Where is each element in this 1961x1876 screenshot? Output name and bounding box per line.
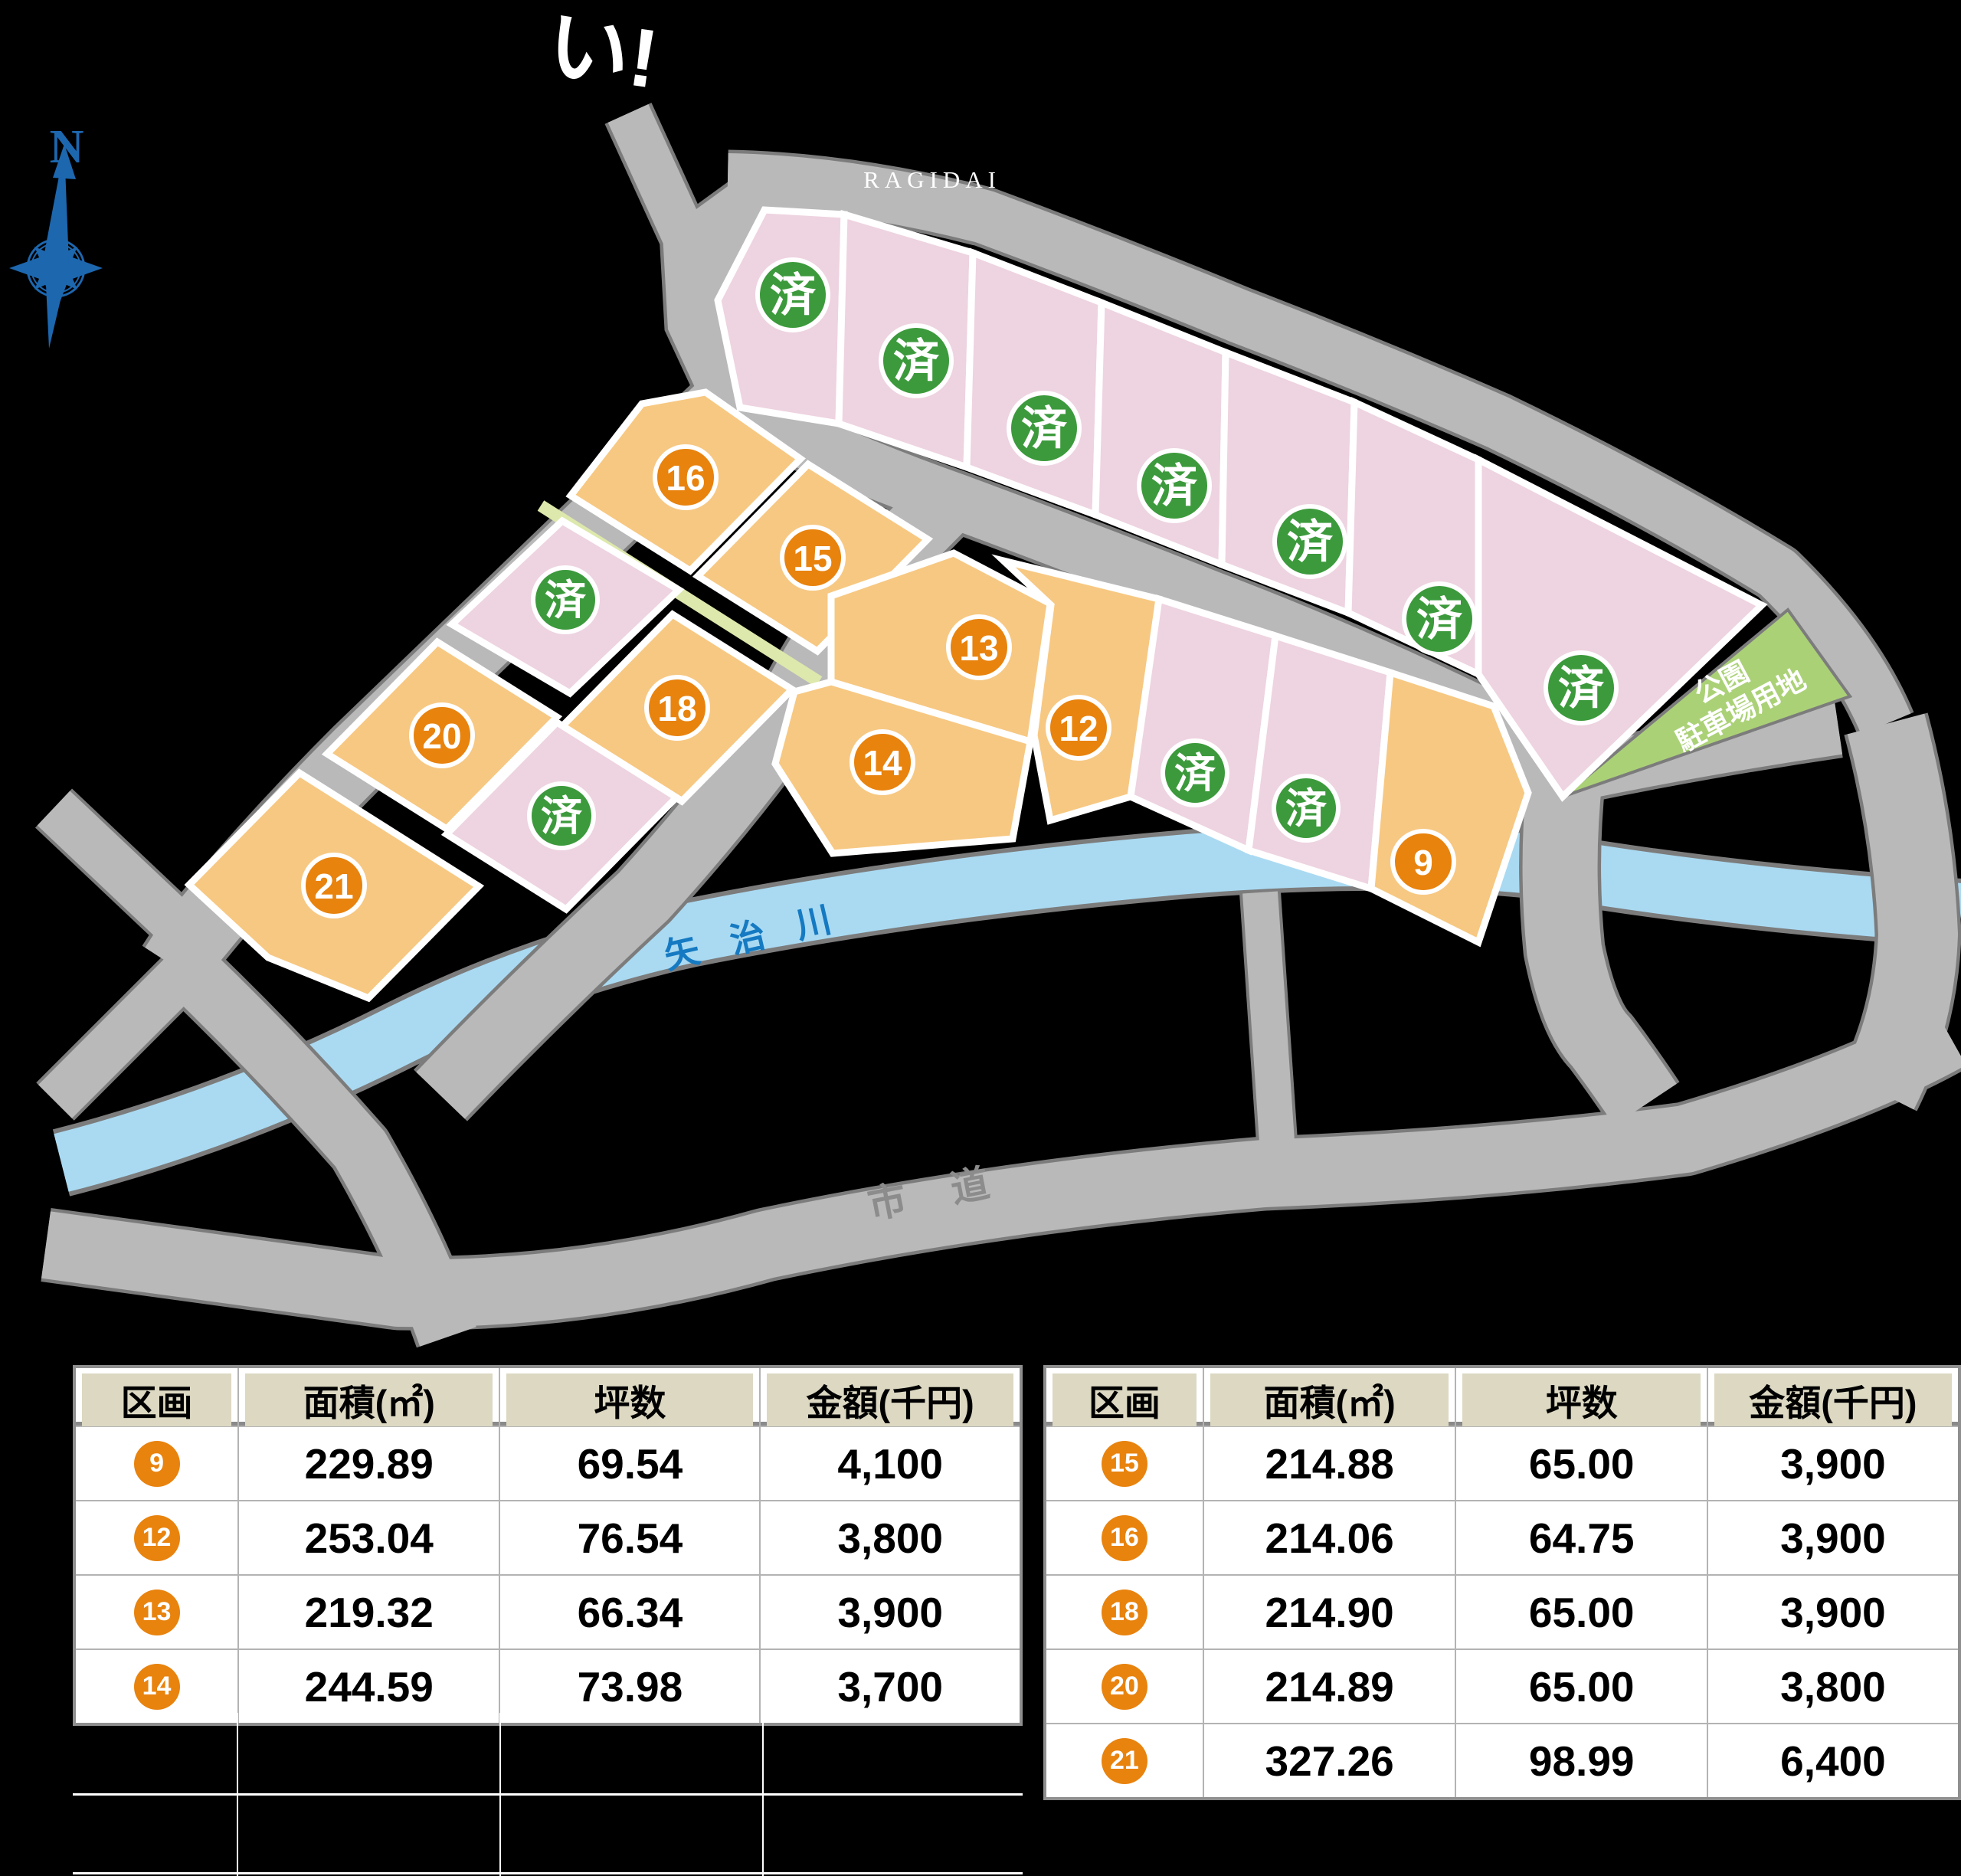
price-cell: 3,700 [761,1650,1020,1723]
lot-number-badge: 21 [1102,1738,1147,1784]
area-cell: 229.89 [239,1427,500,1500]
svg-text:済: 済 [1021,403,1068,454]
lot-number-cell: 21 [1046,1724,1204,1797]
lot-number-cell: 16 [1046,1501,1204,1574]
svg-text:済: 済 [545,578,587,624]
lot-number-cell: 20 [1046,1650,1204,1723]
area-name-label: RAGIDAI [863,166,1001,193]
lot-number-badge: 9 [134,1441,180,1487]
table-row: 13219.3266.343,900 [76,1574,1020,1648]
table-row: 9229.8969.544,100 [76,1426,1020,1500]
svg-text:済: 済 [1558,663,1605,714]
table-row: 18214.9065.003,900 [1046,1574,1958,1648]
title-fragment: い! [542,0,663,106]
lot-sold-5 [1222,352,1354,613]
lot-number-cell: 18 [1046,1576,1204,1648]
price-cell: 3,900 [1708,1501,1958,1574]
column-header: 坪数 [500,1368,761,1432]
svg-text:18: 18 [657,689,696,728]
svg-text:15: 15 [793,539,832,578]
column-header-label: 区画 [1053,1373,1197,1426]
area-cell: 244.59 [239,1650,500,1723]
svg-text:済: 済 [1287,516,1334,568]
area-cell: 219.32 [239,1576,500,1648]
tsubo-cell: 66.34 [500,1576,761,1648]
table-row: 20214.8965.003,800 [1046,1648,1958,1723]
column-header-label: 坪数 [1462,1373,1700,1426]
price-cell: 3,900 [1708,1427,1958,1500]
lot-sold-4 [1095,303,1226,565]
tsubo-cell: 65.00 [1456,1427,1707,1500]
column-header: 面積(㎡) [239,1368,500,1432]
svg-text:済: 済 [541,794,583,840]
svg-text:済: 済 [1416,594,1463,645]
area-cell: 214.06 [1204,1501,1457,1574]
lot-number-badge: 18 [1102,1590,1147,1635]
site-map: 公園 駐車場用地 済 済 済 済 済 済 済 [0,0,1961,1348]
table-row: 16214.0664.753,900 [1046,1500,1958,1574]
column-header: 面積(㎡) [1204,1368,1457,1432]
tsubo-cell: 76.54 [500,1501,761,1574]
lot-number-badge: 14 [134,1664,180,1710]
tsubo-cell: 69.54 [500,1427,761,1500]
lot-number-badge: 13 [134,1590,180,1635]
lot-number-cell: 9 [76,1427,239,1500]
tsubo-cell: 65.00 [1456,1650,1707,1723]
column-header: 金額(千円) [1708,1368,1958,1432]
svg-text:済: 済 [1151,460,1198,512]
svg-text:13: 13 [959,628,998,668]
table-row: 21327.2698.996,400 [1046,1723,1958,1797]
price-cell: 3,800 [1708,1650,1958,1723]
svg-text:済: 済 [893,336,940,387]
area-cell: 253.04 [239,1501,500,1574]
table-row: 14244.5973.983,700 [76,1648,1020,1723]
column-header: 区画 [76,1368,239,1432]
svg-text:14: 14 [863,743,902,783]
svg-text:20: 20 [422,716,461,756]
price-cell: 3,800 [761,1501,1020,1574]
tsubo-cell: 65.00 [1456,1576,1707,1648]
column-header: 坪数 [1456,1368,1707,1432]
column-header-label: 面積(㎡) [245,1373,493,1426]
tsubo-cell: 64.75 [1456,1501,1707,1574]
column-header-label: 区画 [82,1373,231,1426]
lot-number-badge: 15 [1102,1441,1147,1487]
svg-text:済: 済 [1174,751,1216,797]
tsubo-cell: 98.99 [1456,1724,1707,1797]
column-header-label: 金額(千円) [1714,1373,1952,1426]
lot-number-badge: 20 [1102,1664,1147,1710]
price-table-right: 区画面積(㎡)坪数金額(千円)15214.8865.003,90016214.0… [1043,1365,1961,1800]
tsubo-cell: 73.98 [500,1650,761,1723]
price-cell: 3,900 [1708,1576,1958,1648]
svg-text:済: 済 [770,270,817,321]
svg-text:16: 16 [666,458,705,498]
lot-number-cell: 14 [76,1650,239,1723]
table-header-row: 区画面積(㎡)坪数金額(千円) [76,1368,1020,1426]
column-header: 金額(千円) [761,1368,1020,1432]
column-header-label: 金額(千円) [767,1373,1013,1426]
price-cell: 3,900 [761,1576,1020,1648]
column-header: 区画 [1046,1368,1204,1432]
area-cell: 327.26 [1204,1724,1457,1797]
lot-number-cell: 12 [76,1501,239,1574]
lot-sold-11 [1249,636,1390,889]
table-header-row: 区画面積(㎡)坪数金額(千円) [1046,1368,1958,1426]
price-cell: 4,100 [761,1427,1020,1500]
lot-sold-3 [967,253,1102,515]
svg-text:21: 21 [314,866,353,906]
area-cell: 214.89 [1204,1650,1457,1723]
column-header-label: 面積(㎡) [1210,1373,1449,1426]
price-table-left: 区画面積(㎡)坪数金額(千円)9229.8969.544,10012253.04… [73,1365,1023,1726]
lot-number-cell: 15 [1046,1427,1204,1500]
area-cell: 214.88 [1204,1427,1457,1500]
svg-text:済: 済 [1285,786,1328,832]
table-row: 12253.0476.543,800 [76,1500,1020,1574]
column-header-label: 坪数 [506,1373,753,1426]
compass-rose: N [9,121,103,349]
lot-number-badge: 12 [134,1515,180,1561]
svg-text:12: 12 [1059,709,1098,748]
table-row: 15214.8865.003,900 [1046,1426,1958,1500]
lot-number-cell: 13 [76,1576,239,1648]
lot-number-badge: 16 [1102,1515,1147,1561]
price-cell: 6,400 [1708,1724,1958,1797]
svg-text:9: 9 [1413,843,1433,882]
area-cell: 214.90 [1204,1576,1457,1648]
flyer-page: 公園 駐車場用地 済 済 済 済 済 済 済 [0,0,1961,1876]
